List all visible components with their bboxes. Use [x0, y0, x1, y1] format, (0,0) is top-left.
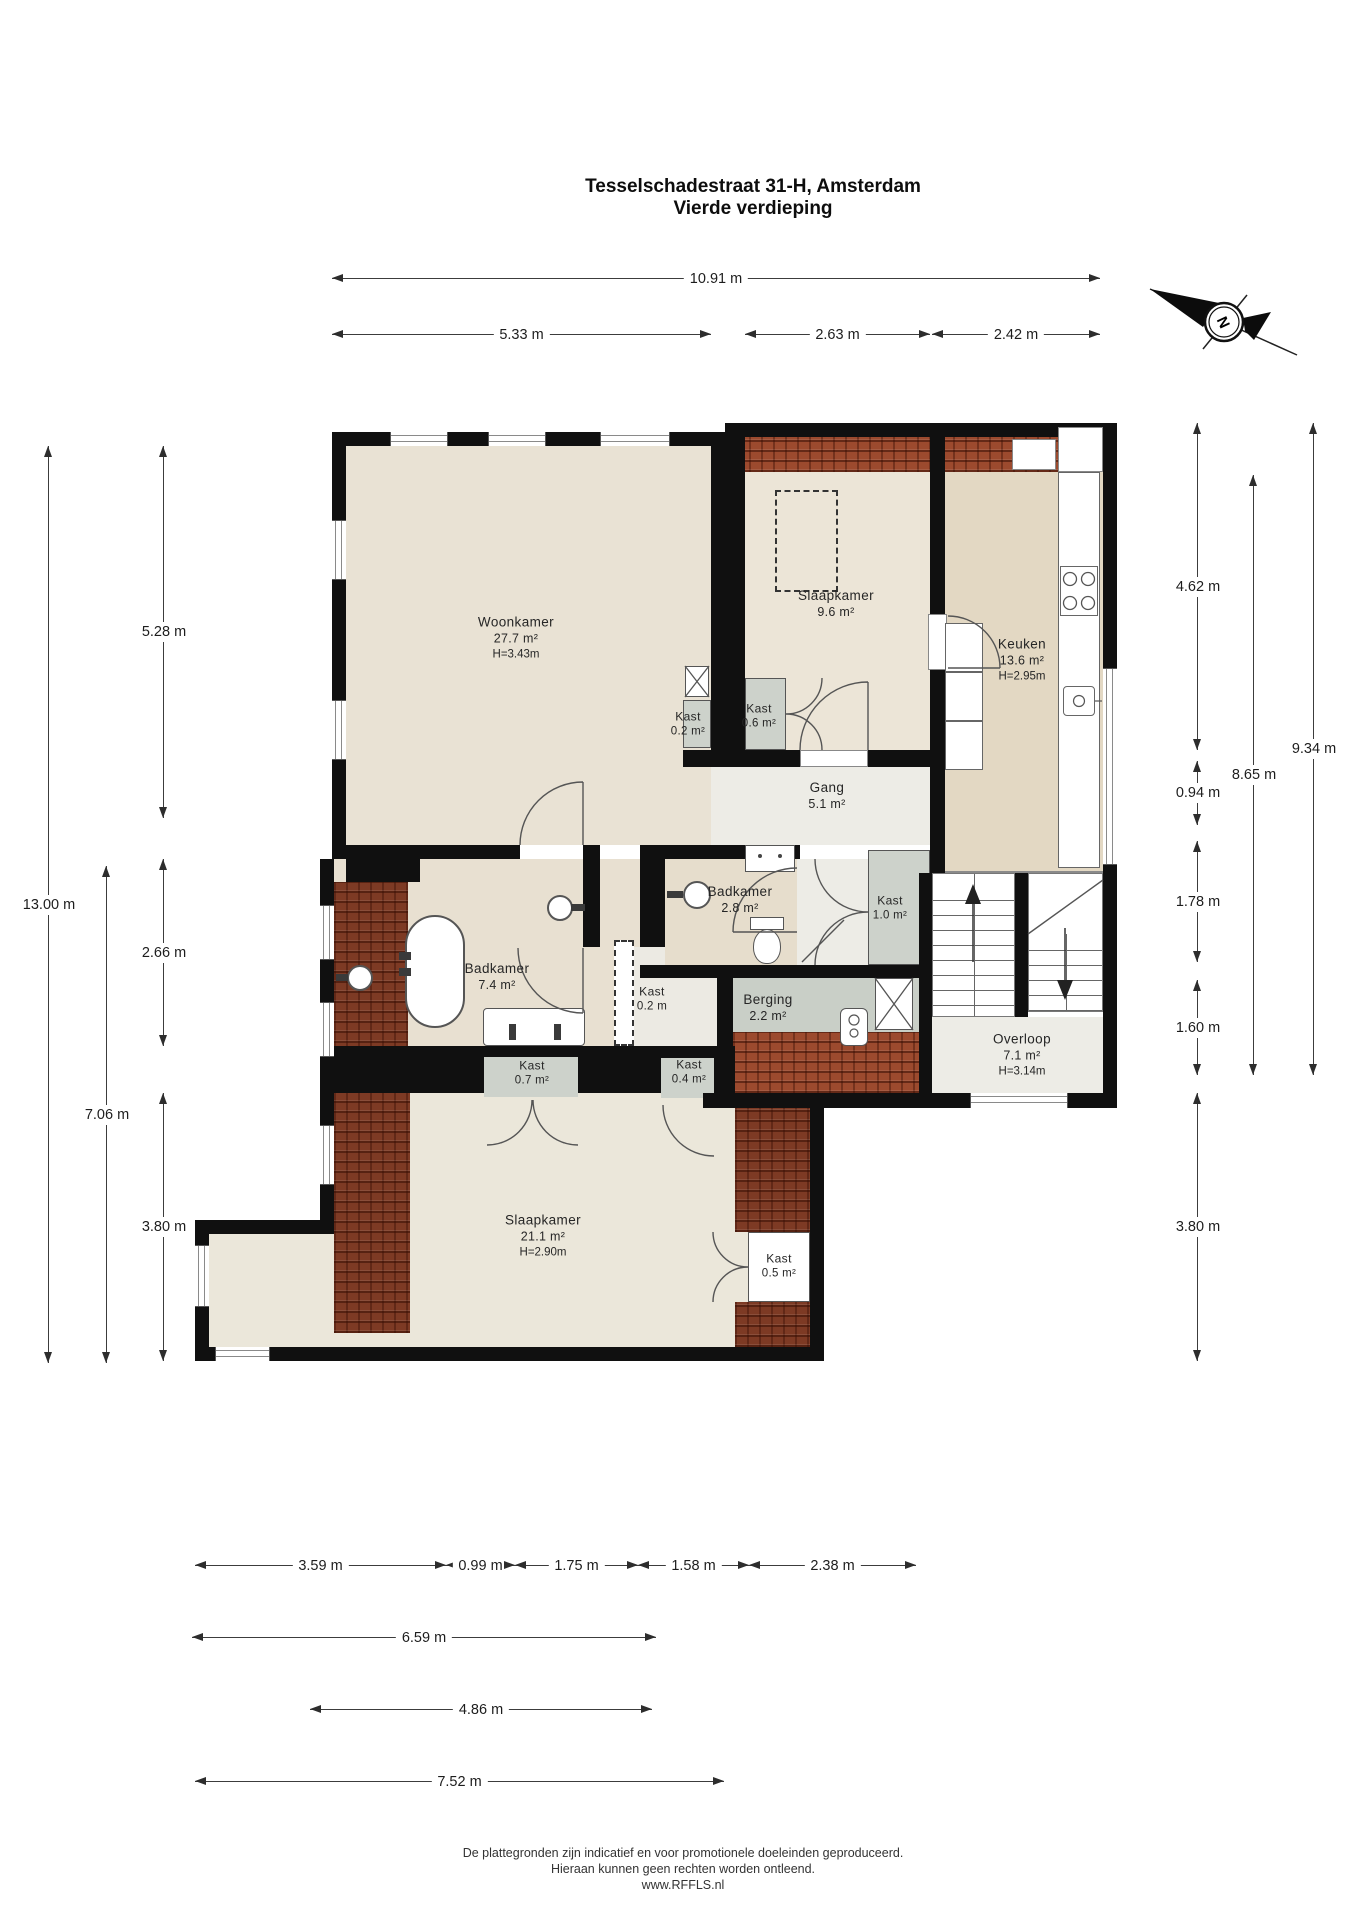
wall [320, 1093, 334, 1125]
kast-name: Kast [877, 893, 903, 908]
door-balkon-keuken [1058, 427, 1103, 472]
room-name: Badkamer [708, 884, 773, 901]
dim-label: 2.63 m [809, 326, 865, 344]
dim-bottom-659: 6.59 m [192, 1637, 656, 1638]
shower-unit [745, 845, 795, 872]
dim-label: 5.33 m [493, 326, 549, 344]
kast-name: Kast [639, 984, 665, 999]
disclaimer-footer: De plattegronden zijn indicatief en voor… [463, 1845, 904, 1893]
dim-label: 3.80 m [138, 1217, 190, 1237]
room-height: H=2.95m [999, 669, 1046, 683]
kast-name: Kast [766, 1251, 792, 1266]
dim-label: 1.60 m [1172, 1018, 1224, 1038]
kast-area: 0.4 m² [672, 1072, 706, 1086]
dim-label: 1.75 m [548, 1557, 604, 1575]
dim-height-woonkamer: 5.28 m [163, 446, 164, 818]
sink-badkamer-groot-1 [347, 965, 373, 991]
wall [683, 750, 800, 767]
room-name: Berging [743, 992, 792, 1009]
room-name: Overloop [993, 1032, 1051, 1049]
wall [711, 432, 745, 767]
dim-width-keuken: 2.42 m [932, 334, 1100, 335]
room-height: H=2.90m [520, 1245, 567, 1259]
window-slaapkamer-left-2 [195, 1245, 209, 1307]
stair-stringer [1066, 934, 1067, 1011]
dim-label: 4.86 m [453, 1701, 509, 1719]
disclaimer-line-1: De plattegronden zijn indicatief en voor… [463, 1845, 904, 1861]
window-woonkamer-left-2 [332, 700, 346, 760]
room-label-gang: Gang 5.1 m² [808, 780, 845, 813]
room-name: Gang [810, 780, 845, 797]
dim-bottom-158: 1.58 m [638, 1565, 749, 1566]
window-woonkamer-top-1 [390, 432, 448, 446]
sink-tap [336, 974, 348, 981]
dim-bottom-175: 1.75 m [515, 1565, 638, 1566]
room-name: Woonkamer [478, 615, 554, 632]
room-label-overloop: Overloop 7.1 m² H=3.14m [993, 1032, 1051, 1079]
kast-area: 0.2 m² [671, 724, 705, 738]
wall [703, 1093, 919, 1108]
berging-hatch-box [875, 978, 913, 1030]
label-kast-wastafel: Kast 0.7 m² [515, 1058, 549, 1087]
bathtub-tap [399, 952, 411, 960]
bathtub-tap2 [399, 968, 411, 976]
dim-label: 5.28 m [138, 622, 190, 642]
dim-label: 6.59 m [396, 1629, 452, 1647]
wall [1015, 873, 1028, 1017]
kitchen-counter [1058, 472, 1100, 868]
dim-height-right-178: 1.78 m [1197, 841, 1198, 962]
stair-flight-down [1028, 873, 1103, 1012]
window-overloop-bottom [970, 1093, 1068, 1108]
dim-bottom-486: 4.86 m [310, 1709, 652, 1710]
wall [320, 1185, 334, 1220]
dim-bottom-099: 0.99 m [446, 1565, 515, 1566]
dim-label: 7.52 m [431, 1773, 487, 1791]
stair-stringer [974, 874, 975, 1016]
window-slaapkamer-left-1 [320, 1125, 334, 1185]
disclaimer-website: www.RFFLS.nl [463, 1877, 904, 1893]
wall [640, 965, 930, 978]
cooktop [1060, 566, 1098, 616]
window-roof-keuken [1012, 439, 1056, 470]
window-woonkamer-top-2 [488, 432, 546, 446]
floor-vestibule [797, 859, 868, 965]
dim-bottom-752: 7.52 m [195, 1781, 724, 1782]
wall [1103, 865, 1117, 1108]
label-kast-berging: Kast 0.4 m² [672, 1057, 706, 1086]
title-floor: Vierde verdieping [585, 198, 921, 220]
kast-name: Kast [519, 1058, 545, 1073]
wall [930, 668, 945, 873]
room-area: 2.8 m² [721, 901, 758, 917]
dim-label: 8.65 m [1228, 765, 1280, 785]
fridge-cabinet-3 [945, 721, 983, 770]
room-name: Slaapkamer [505, 1213, 581, 1230]
window-badkamer-left-1 [320, 905, 334, 960]
dim-height-right-inner: 8.65 m [1253, 475, 1254, 1075]
wall [919, 1093, 970, 1108]
roof-tiles-slaapkamer-right-top [735, 1108, 810, 1232]
room-area: 21.1 m² [521, 1229, 565, 1245]
wall [1103, 423, 1117, 668]
label-kast-woonkamer: Kast 0.2 m² [671, 709, 705, 738]
shaft-hatch-box [685, 666, 709, 697]
room-area: 7.4 m² [478, 978, 515, 994]
title-address: Tesselschadestraat 31-H, Amsterdam [585, 176, 921, 198]
room-area: 9.6 m² [817, 605, 854, 621]
room-label-keuken: Keuken 13.6 m² H=2.95m [998, 637, 1046, 684]
window-woonkamer-top-3 [600, 432, 670, 446]
compass-needle [1150, 289, 1219, 327]
window-slaapkamer-bottom [215, 1347, 270, 1361]
dim-label: 9.34 m [1288, 739, 1340, 759]
kast-area: 0.2 m [637, 999, 667, 1013]
dim-label: 0.94 m [1172, 783, 1224, 803]
room-area: 5.1 m² [808, 797, 845, 813]
dim-label: 2.42 m [988, 326, 1044, 344]
dim-label: 3.59 m [292, 1557, 348, 1575]
compass-star [1243, 312, 1271, 340]
dim-label: 7.06 m [81, 1105, 133, 1125]
room-label-slaapkamer-beneden: Slaapkamer 21.1 m² H=2.90m [505, 1213, 581, 1260]
window-keuken-right [1103, 668, 1117, 865]
wall [195, 1220, 334, 1234]
label-kast-slaapkamer-boven: Kast 0.6 m² [742, 701, 776, 730]
dim-width-woonkamer: 5.33 m [332, 334, 711, 335]
dim-label: 2.38 m [804, 1557, 860, 1575]
disclaimer-line-2: Hieraan kunnen geen rechten worden ontle… [463, 1861, 904, 1877]
roof-tiles-top-band [725, 437, 1058, 472]
room-height: H=3.14m [999, 1064, 1046, 1078]
wall [346, 859, 420, 882]
dim-label: 1.58 m [665, 1557, 721, 1575]
sink-tap [571, 904, 585, 911]
dim-label: 10.91 m [684, 270, 748, 288]
dim-label: 2.66 m [138, 943, 190, 963]
skylight-slaapkamer-boven [775, 490, 838, 592]
wall [640, 845, 665, 947]
window-woonkamer-left-1 [332, 520, 346, 580]
dim-label: 1.78 m [1172, 892, 1224, 912]
sink-tap [667, 891, 683, 898]
vanity-double-sink [483, 1008, 585, 1046]
dim-width-slaapkamer: 2.63 m [745, 334, 930, 335]
room-name: Slaapkamer [798, 588, 874, 605]
kast-area: 0.5 m² [762, 1266, 796, 1280]
dim-label: 0.99 m [452, 1557, 508, 1575]
fridge-cabinet-1 [945, 623, 983, 672]
roof-tiles-slaapkamer-right-bottom [735, 1302, 810, 1347]
fridge-cabinet-2 [945, 672, 983, 721]
room-label-badkamer-groot: Badkamer 7.4 m² [465, 961, 530, 994]
wall [332, 845, 520, 859]
wall [320, 960, 334, 1002]
wall [868, 750, 930, 767]
room-area: 2.2 m² [749, 1009, 786, 1025]
window-badkamer-left-2 [320, 1002, 334, 1057]
room-label-badkamer-klein: Badkamer 2.8 m² [708, 884, 773, 917]
dim-label: 4.62 m [1172, 577, 1224, 597]
wall [583, 845, 600, 947]
kast-area: 1.0 m² [873, 908, 907, 922]
vanity-tap-2 [554, 1024, 561, 1040]
dim-height-slaapkamer-right: 3.80 m [1197, 1093, 1198, 1361]
room-label-berging: Berging 2.2 m² [743, 992, 792, 1025]
toilet-bowl [753, 929, 781, 964]
dim-bottom-238: 2.38 m [749, 1565, 916, 1566]
dim-height-overloop: 1.60 m [1197, 980, 1198, 1075]
kast-area: 0.6 m² [742, 716, 776, 730]
vanity-tap-1 [509, 1024, 516, 1040]
kitchen-sink [1063, 686, 1095, 716]
page-title: Tesselschadestraat 31-H, Amsterdam Vierd… [585, 176, 921, 220]
kast-name: Kast [746, 701, 772, 716]
kast-name: Kast [675, 709, 701, 724]
dim-height-right-outer: 9.34 m [1313, 423, 1314, 1075]
room-height: H=3.43m [493, 647, 540, 661]
room-name: Keuken [998, 637, 1046, 654]
wall [1068, 1093, 1117, 1108]
dim-label: 13.00 m [19, 895, 79, 915]
wall [195, 1347, 824, 1361]
dim-total-width: 10.91 m [332, 278, 1100, 279]
room-area: 7.1 m² [1003, 1048, 1040, 1064]
dim-label: 3.80 m [1172, 1217, 1224, 1237]
kast-area: 0.7 m² [515, 1073, 549, 1087]
dim-height-left-lower: 7.06 m [106, 866, 107, 1363]
room-area: 13.6 m² [1000, 653, 1044, 669]
wall [919, 873, 932, 1093]
wall [320, 859, 334, 905]
label-kast-badkamer: Kast 0.2 m [637, 984, 667, 1013]
wall [930, 437, 945, 616]
roof-tiles-berging [733, 1032, 919, 1093]
wall [332, 432, 346, 859]
wall [195, 1307, 209, 1347]
door-gang-slaapkamer [800, 750, 868, 767]
kast-name: Kast [676, 1057, 702, 1072]
sink-badkamer-groot-2 [547, 895, 573, 921]
room-label-woonkamer: Woonkamer 27.7 m² H=3.43m [478, 615, 554, 662]
room-label-slaapkamer-boven: Slaapkamer 9.6 m² [798, 588, 874, 621]
label-kast-slaapkamer-beneden: Kast 0.5 m² [762, 1251, 796, 1280]
room-name: Badkamer [465, 961, 530, 978]
dim-height-right-094: 0.94 m [1197, 761, 1198, 825]
room-area: 27.7 m² [494, 631, 538, 647]
dim-height-total-left: 13.00 m [48, 446, 49, 1363]
floorplan-page: Tesselschadestraat 31-H, Amsterdam Vierd… [0, 0, 1358, 1920]
dim-height-slaapkamer-left: 3.80 m [163, 1093, 164, 1361]
dim-height-keuken-right: 4.62 m [1197, 423, 1198, 750]
roof-tiles-slaapkamer-left [334, 1093, 410, 1333]
label-kast-overloop: Kast 1.0 m² [873, 893, 907, 922]
stair-flight-up [932, 873, 1015, 1017]
kast-badkamer-box [614, 940, 634, 1046]
wall [810, 1108, 824, 1361]
wall [195, 1234, 209, 1245]
bathtub [405, 915, 465, 1028]
dim-height-badkamer: 2.66 m [163, 859, 164, 1046]
compass-north-label: N [1214, 313, 1234, 330]
boiler [840, 1008, 868, 1046]
dim-bottom-359: 3.59 m [195, 1565, 446, 1566]
